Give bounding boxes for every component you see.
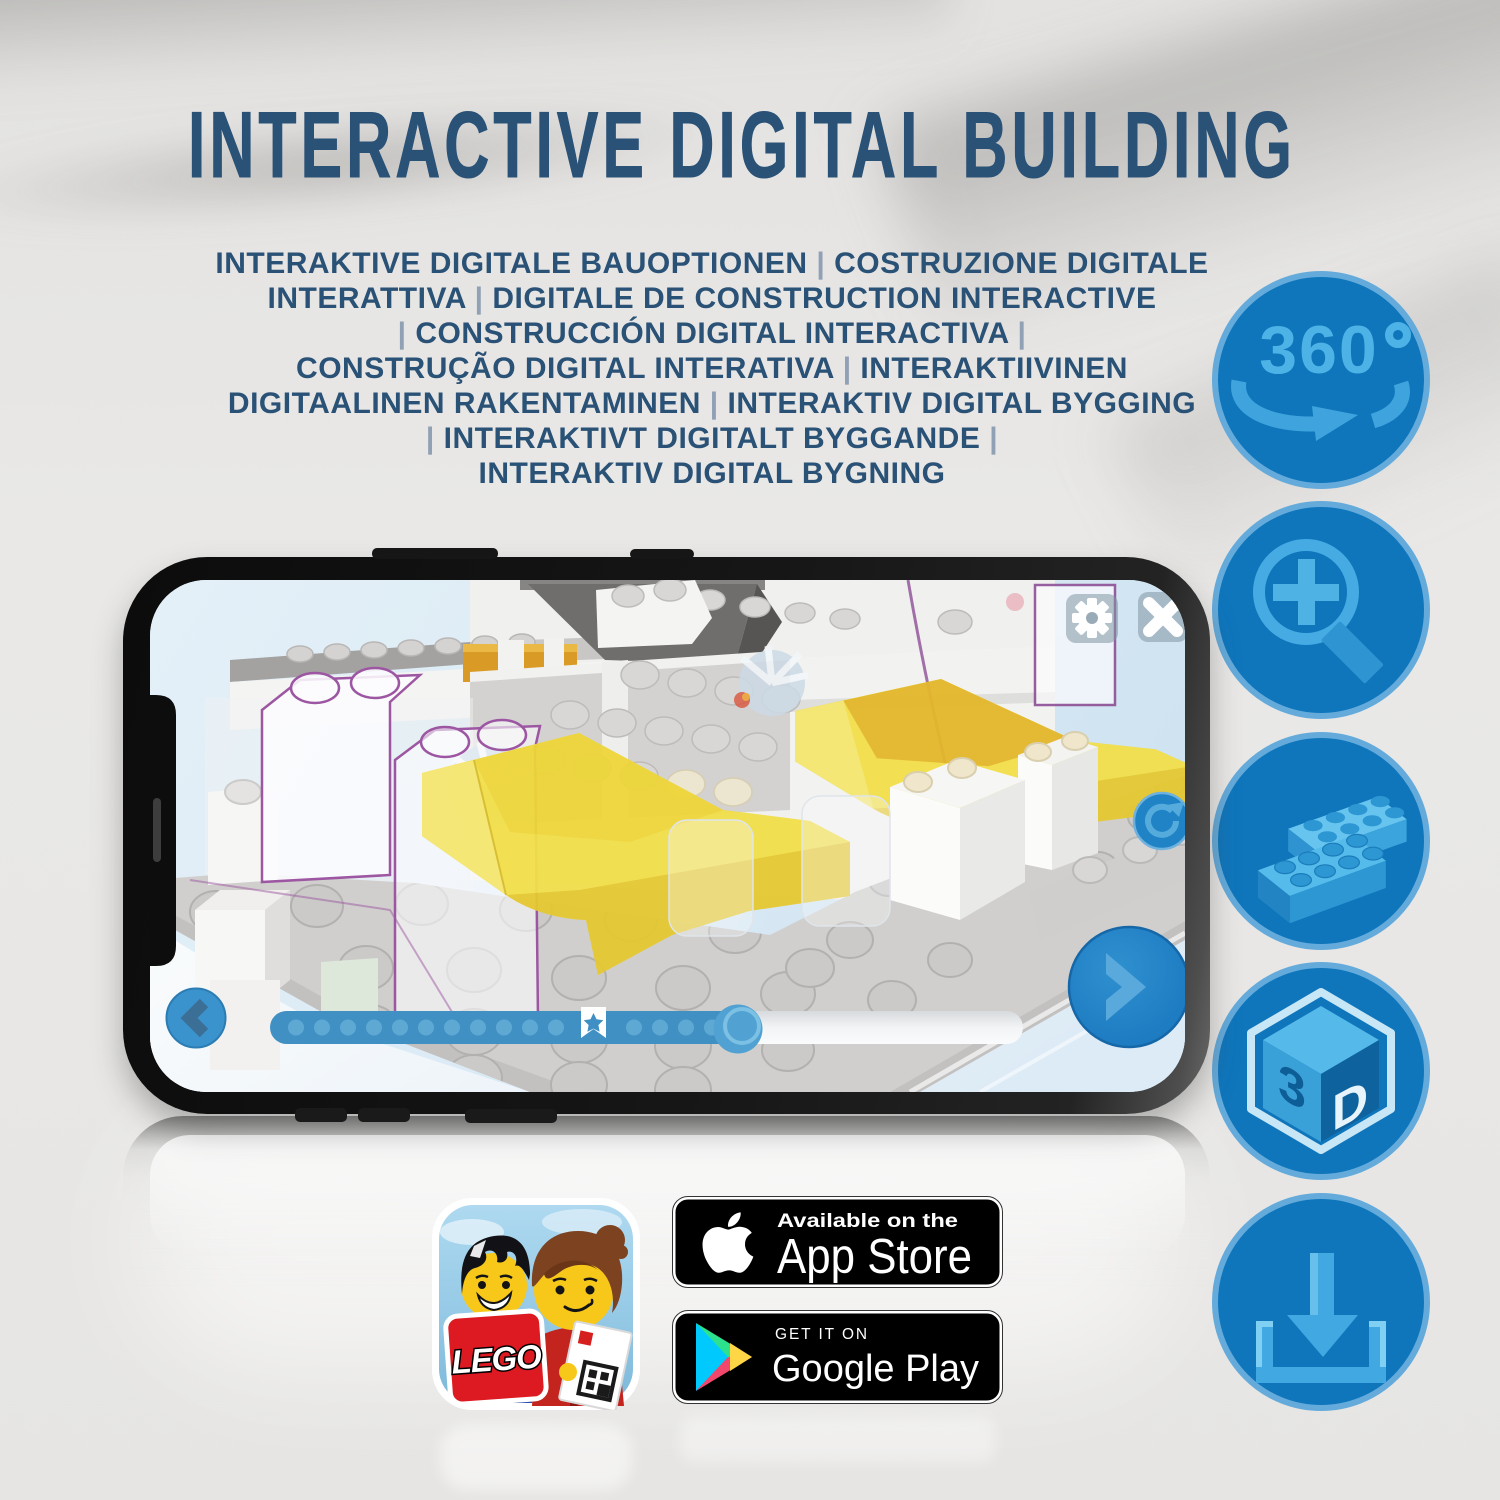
svg-text:App Store: App Store — [777, 1230, 972, 1284]
svg-text:Google Play: Google Play — [772, 1348, 979, 1390]
svg-text:Available on the: Available on the — [777, 1211, 958, 1232]
svg-text:LEGO: LEGO — [450, 1337, 543, 1380]
svg-text:360: 360 — [1259, 312, 1378, 388]
svg-text:GET IT ON: GET IT ON — [775, 1326, 869, 1343]
